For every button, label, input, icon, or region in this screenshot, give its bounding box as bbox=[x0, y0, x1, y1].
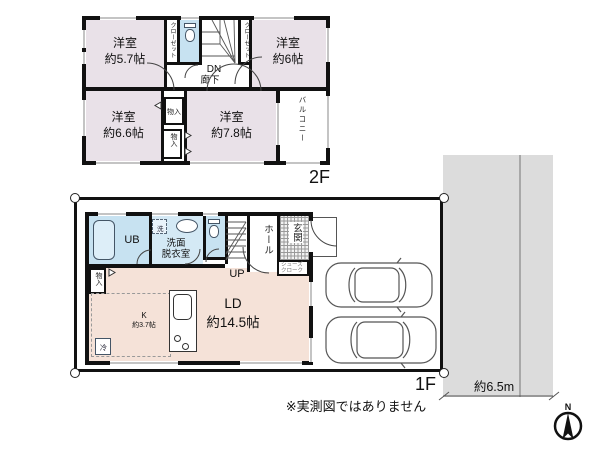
window bbox=[181, 16, 199, 20]
unit-bath-label: UB bbox=[117, 233, 147, 247]
window bbox=[286, 161, 320, 165]
hallway-label: 廊下 bbox=[196, 75, 224, 87]
stairs-2f bbox=[202, 20, 238, 65]
storage-1f: 物入 bbox=[89, 268, 106, 294]
window bbox=[326, 28, 330, 62]
road-width-label: 約6.5m bbox=[462, 379, 526, 395]
storage-upper-label: 物入 bbox=[167, 107, 181, 117]
room-6-size: 約6帖 bbox=[250, 52, 326, 68]
window bbox=[190, 161, 264, 165]
compass-north-label: N bbox=[565, 402, 572, 412]
stairs-up-label: UP bbox=[224, 267, 250, 281]
floorplan-page: 洋室 約5.7帖 クローゼット クローゼット 洋室 約6帖 DN 廊下 洋室 約… bbox=[0, 0, 600, 450]
window bbox=[98, 212, 126, 216]
washroom-line2: 脱衣室 bbox=[149, 249, 203, 260]
washroom-label: 洗面 脱衣室 bbox=[149, 238, 203, 261]
washroom-line1: 洗面 bbox=[149, 238, 203, 249]
room-78-label: 洋室 約7.8帖 bbox=[187, 110, 276, 141]
living-name: LD bbox=[186, 295, 280, 314]
kitchen-size: 約3.7帖 bbox=[120, 321, 168, 331]
disclaimer-note: ※実測図ではありません bbox=[272, 399, 440, 416]
toilet-1f-tank bbox=[208, 219, 220, 224]
window bbox=[82, 30, 86, 48]
window bbox=[100, 16, 136, 20]
storage-upper: 物入 bbox=[164, 97, 184, 125]
room-66-label: 洋室 約6.6帖 bbox=[86, 110, 161, 141]
road-area bbox=[443, 155, 553, 397]
entrance-label: 玄関 bbox=[289, 222, 303, 243]
compass-circle bbox=[555, 413, 581, 439]
balcony: バルコニー bbox=[280, 91, 326, 161]
window bbox=[240, 361, 302, 365]
entrance: 玄関 bbox=[277, 216, 309, 260]
shoe-closet-line2: クローク bbox=[279, 268, 307, 274]
window bbox=[309, 338, 313, 362]
washbasin bbox=[176, 219, 198, 233]
boundary-marker bbox=[70, 193, 80, 203]
kitchen-label: K 約3.7帖 bbox=[120, 310, 168, 331]
window bbox=[309, 282, 313, 306]
closet-left-label: クローゼット bbox=[168, 22, 177, 58]
floor1-label: 1F bbox=[396, 373, 436, 396]
stairs-1f bbox=[225, 216, 247, 264]
bathtub bbox=[93, 220, 115, 260]
boundary-marker bbox=[439, 193, 449, 203]
living-size: 約14.5帖 bbox=[186, 314, 280, 333]
refrigerator-label: 冷 bbox=[100, 343, 107, 353]
window bbox=[254, 16, 294, 20]
room-57-name: 洋室 bbox=[86, 36, 164, 52]
window bbox=[152, 212, 178, 216]
toilet-2f-bowl bbox=[185, 29, 195, 42]
window bbox=[96, 161, 140, 165]
storage-1f-label: 物入 bbox=[93, 272, 103, 286]
hall-label: ホール bbox=[260, 224, 274, 256]
road-divider-line bbox=[519, 155, 521, 397]
window bbox=[203, 212, 218, 216]
window bbox=[326, 96, 330, 148]
kitchen-name: K bbox=[120, 310, 168, 321]
room-6-label: 洋室 約6帖 bbox=[250, 36, 326, 67]
stove-burner bbox=[182, 343, 189, 350]
storage-lower: 物入 bbox=[162, 129, 182, 159]
room-78-size: 約7.8帖 bbox=[187, 126, 276, 142]
window bbox=[82, 100, 86, 136]
storage-lower-label: 物入 bbox=[168, 133, 178, 147]
room-78-name: 洋室 bbox=[187, 110, 276, 126]
living-dining-label: LD 約14.5帖 bbox=[186, 295, 280, 333]
entrance-porch bbox=[313, 217, 337, 257]
hall: ホール bbox=[247, 216, 277, 272]
closet-left: クローゼット bbox=[167, 20, 180, 65]
washing-machine: 洗 bbox=[152, 219, 167, 234]
room-66-size: 約6.6帖 bbox=[86, 126, 161, 142]
floor2-label: 2F bbox=[290, 166, 330, 189]
boundary-marker bbox=[439, 368, 449, 378]
compass: N bbox=[555, 402, 581, 439]
balcony-label: バルコニー bbox=[297, 96, 308, 144]
room-57-size: 約5.7帖 bbox=[86, 52, 164, 68]
window bbox=[110, 361, 178, 365]
boundary-marker bbox=[70, 368, 80, 378]
room-66-name: 洋室 bbox=[86, 110, 161, 126]
window bbox=[82, 52, 86, 64]
toilet-2f-tank bbox=[184, 23, 196, 28]
floor1-divider-wall bbox=[89, 264, 225, 268]
compass-needle-icon bbox=[563, 413, 574, 439]
washer-label: 洗 bbox=[157, 223, 164, 233]
entrance-door-opening bbox=[309, 221, 313, 252]
room-6-name: 洋室 bbox=[250, 36, 326, 52]
stove-burner bbox=[174, 335, 181, 342]
room-57-label: 洋室 約5.7帖 bbox=[86, 36, 164, 67]
room6-left-wall bbox=[249, 65, 252, 87]
shoe-closet: シューズ クローク bbox=[277, 260, 309, 276]
toilet-1f-bowl bbox=[209, 225, 219, 238]
refrigerator: 冷 bbox=[95, 338, 111, 355]
